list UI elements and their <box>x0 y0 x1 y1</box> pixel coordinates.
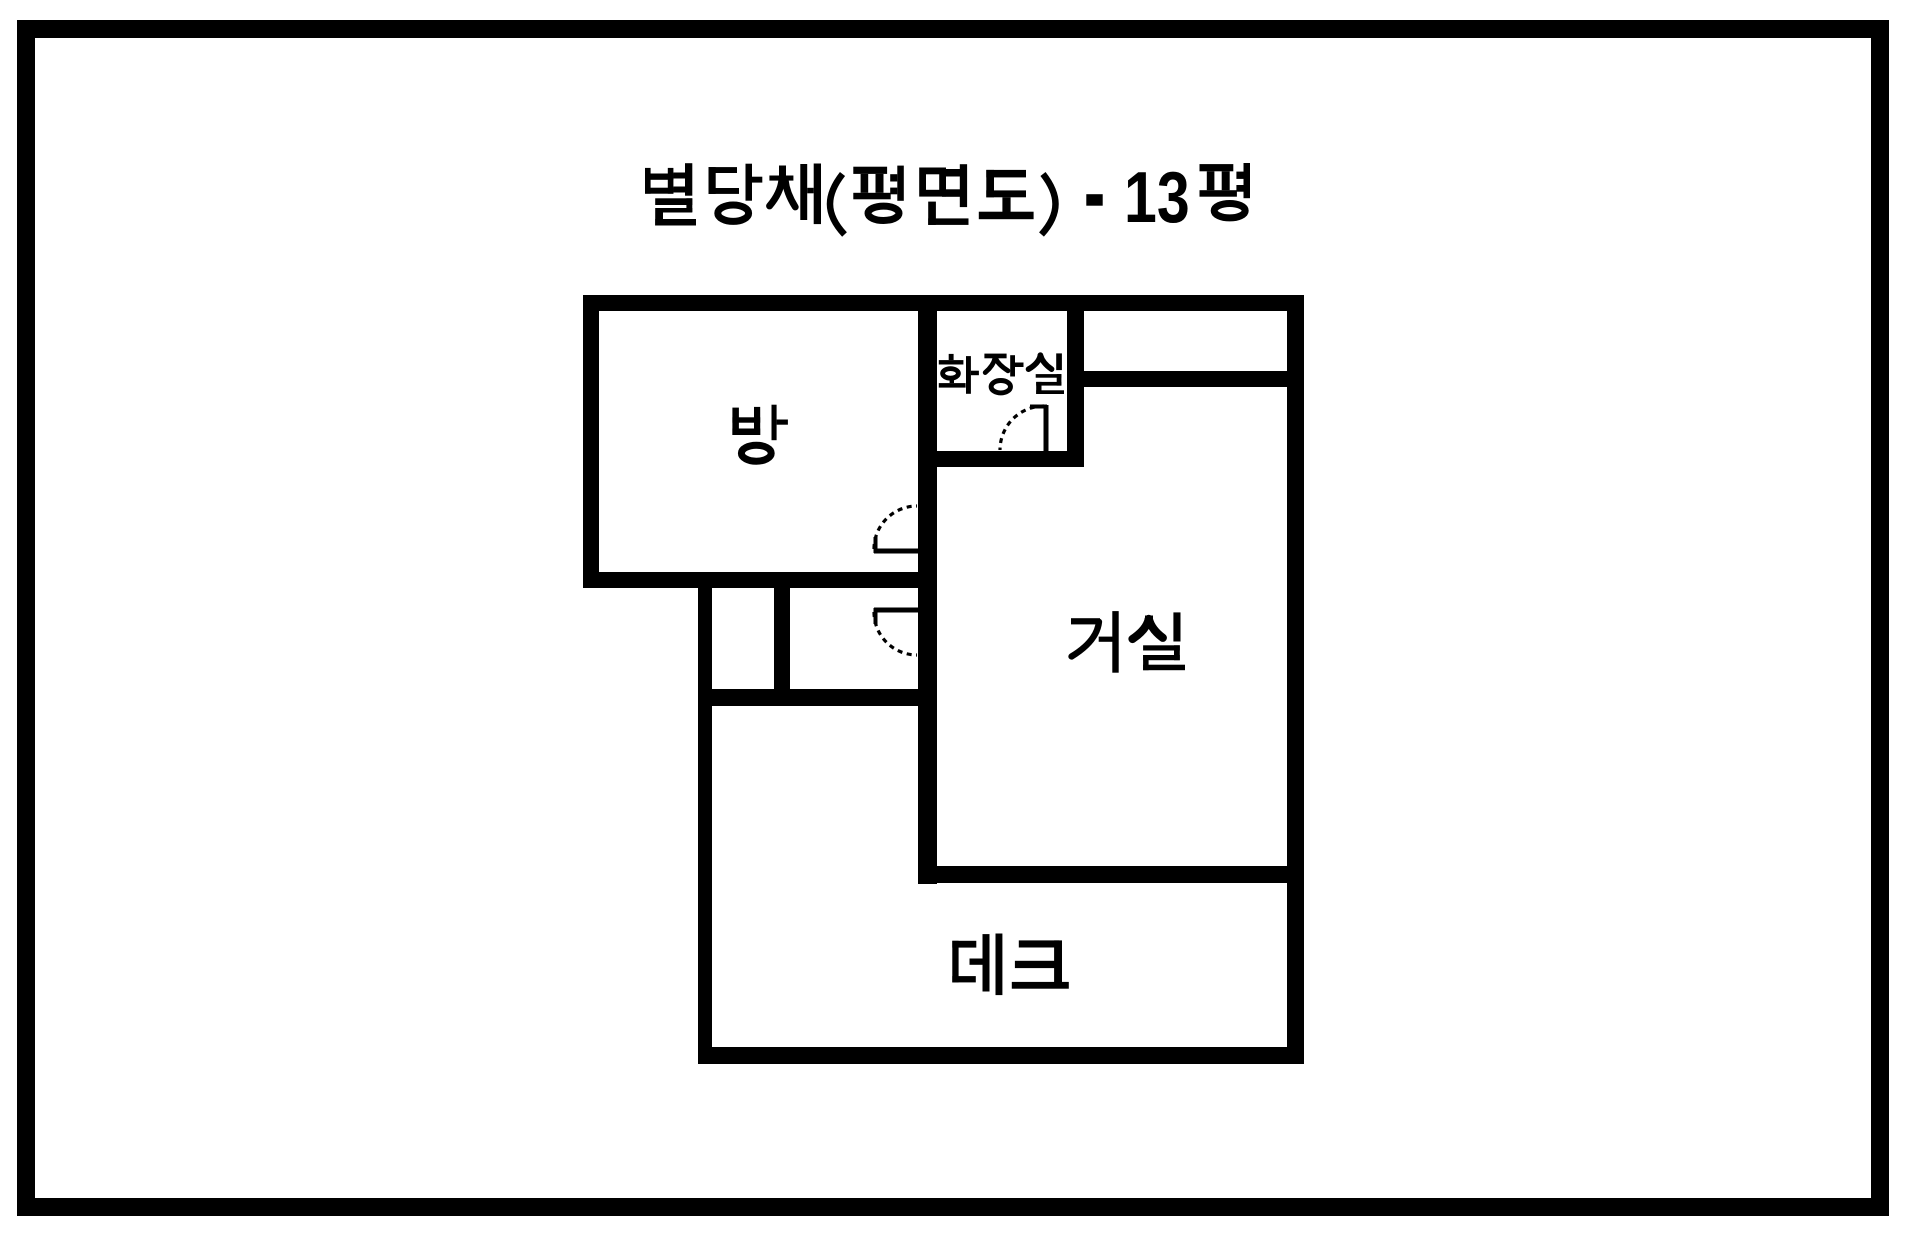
svg-text:13: 13 <box>1124 157 1190 238</box>
